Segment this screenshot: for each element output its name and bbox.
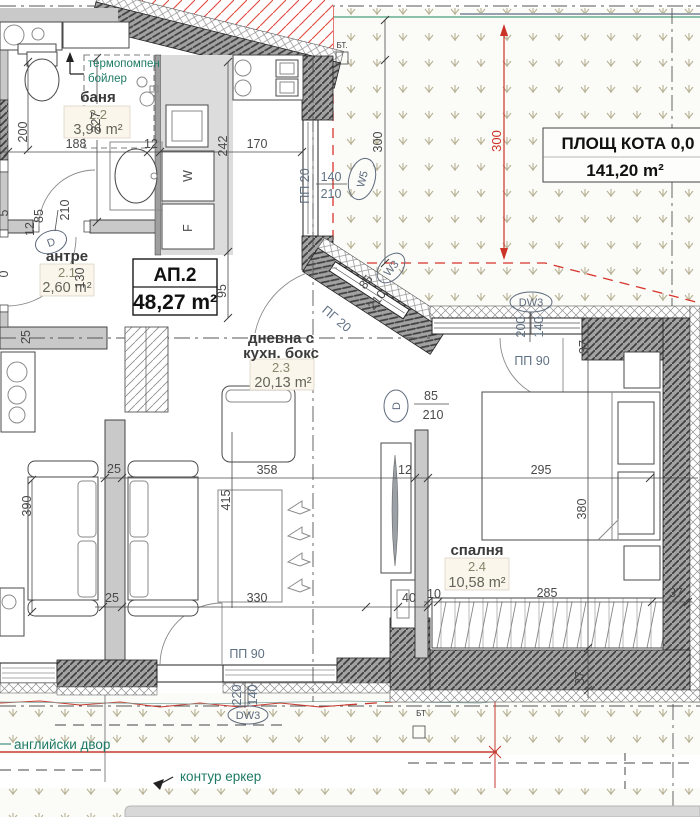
- insulation-right: [690, 306, 700, 702]
- dim-cut-0: 0: [0, 270, 11, 277]
- dim-95: 95: [215, 284, 229, 298]
- sofa1-armrest-bottom: [28, 600, 98, 616]
- sofa1-body: [28, 477, 98, 600]
- dim-300-red: 300: [489, 130, 504, 152]
- dim-dw-220: 220: [230, 685, 244, 706]
- pillow-a: [618, 402, 654, 464]
- sofa2-armrest-bottom: [128, 600, 198, 616]
- chair-3: [288, 553, 310, 566]
- wall-bath-bottom-right: [90, 220, 162, 233]
- dim-242: 242: [216, 136, 230, 157]
- wall-bedroom-right: [663, 318, 690, 690]
- dim-win-140: 140: [321, 170, 342, 184]
- dim-bed-210: 210: [423, 408, 444, 422]
- entry-jamb-top: [0, 230, 8, 237]
- entry-jamb-bottom: [0, 305, 8, 312]
- room-name-hall: антре: [46, 248, 88, 265]
- closet-hatched: [125, 327, 168, 412]
- opening-pp90-living: ПП 90: [229, 647, 264, 661]
- dim-37-bottom: 37: [573, 671, 587, 685]
- dim-dw-200: 200: [514, 317, 528, 338]
- north-arrow-head: [66, 52, 74, 62]
- dim-295: 295: [531, 463, 552, 477]
- wall-bedroom-bottom: [420, 650, 690, 690]
- boiler-unit-a: [137, 77, 147, 87]
- wall-left-b: [0, 172, 8, 230]
- insulation-south-a: [0, 683, 57, 693]
- insulation-bedroom-top: [430, 306, 690, 318]
- opening-pp20: ПП 20: [298, 168, 312, 203]
- wall-south-block: [57, 660, 157, 687]
- opening-pg20: ПГ 20: [319, 303, 353, 335]
- window-tag-dw3b: DW3: [236, 710, 260, 722]
- dim-12-tv: 12: [398, 463, 412, 477]
- room-name-bathroom: баня: [80, 89, 115, 106]
- dim-25-wall: 25: [19, 330, 33, 344]
- sofa2-armrest-top: [128, 461, 198, 477]
- nightstand-top: [624, 352, 660, 388]
- boiler-note-2: бойлер: [88, 73, 127, 85]
- dim-40: 40: [402, 591, 416, 605]
- dim-130: 130: [73, 268, 87, 289]
- wall-left-hatch: [0, 100, 8, 160]
- chair-2: [288, 527, 310, 540]
- dim-188: 188: [66, 137, 87, 151]
- opening-pp90-bedroom: ПП 90: [514, 354, 549, 368]
- dim-380: 380: [575, 499, 589, 520]
- sofa1-armrest-top: [28, 461, 98, 477]
- window-tag-dw3a: DW3: [519, 297, 543, 309]
- appliance-w: W: [181, 170, 195, 182]
- cooktop-left: [1, 352, 35, 432]
- wall-left-top: [0, 8, 118, 22]
- wall-kitchen-ne-corner: [302, 56, 333, 120]
- english-yard-note: английски двор: [14, 737, 110, 752]
- room-area-living: 20,13 m²: [254, 375, 311, 391]
- dim-25-bottom: 25: [105, 591, 119, 605]
- room-num-living: 2.3: [272, 360, 290, 375]
- north-arrow: [70, 60, 84, 74]
- floor-plan-drawing: баня 2.2 3,96 m² антре 2.1 2,60 m² дневн…: [0, 0, 700, 817]
- dim-12b: 12: [23, 222, 37, 236]
- door-tag-d2: D: [391, 402, 403, 410]
- bt-tag-bottom: БТ: [416, 709, 426, 718]
- wardrobe-bedroom: [432, 598, 663, 648]
- dim-415: 415: [219, 490, 233, 511]
- dim-285: 285: [537, 586, 558, 600]
- bay-column-left: [105, 420, 125, 660]
- pillow-b: [618, 472, 654, 534]
- dim-door-85: 85: [32, 209, 46, 223]
- insulation-bedroom-bottom: [390, 690, 700, 702]
- bay-column-right: [415, 430, 428, 658]
- insulation-south-b: [57, 687, 157, 695]
- dim-390: 390: [20, 496, 34, 517]
- dim-win-210: 210: [321, 187, 342, 201]
- toilet-bowl: [25, 59, 59, 101]
- room-name-bedroom: спалня: [450, 542, 503, 559]
- site-area-value: 141,20 m²: [586, 161, 664, 180]
- wall-kitchen-divider: [155, 55, 161, 255]
- dim-358: 358: [257, 463, 278, 477]
- dim-37-right: 37: [669, 586, 683, 600]
- floor-plan-canvas: баня 2.2 3,96 m² антре 2.1 2,60 m² дневн…: [0, 0, 700, 817]
- dim-door-210: 210: [58, 200, 72, 221]
- dim-10: 10: [427, 587, 441, 601]
- apartment-id: АП.2: [154, 265, 197, 286]
- dim-227: 227: [89, 112, 103, 133]
- road-bar: [125, 806, 700, 817]
- chair-1: [288, 501, 310, 514]
- boiler-note-1: термопомпен: [88, 58, 160, 70]
- dim-200: 200: [16, 122, 30, 143]
- apartment-area: 48,27 m²: [133, 291, 217, 314]
- dim-12a: 12: [144, 137, 158, 151]
- wall-left-c: [0, 312, 8, 327]
- sofa2-body: [128, 477, 198, 600]
- appliance-f: F: [181, 224, 195, 232]
- boiler-unit-b: [140, 92, 154, 106]
- room-area-bedroom: 10,58 m²: [448, 575, 505, 591]
- door-south-frame: [157, 665, 223, 682]
- room-num-bedroom: 2.4: [468, 559, 486, 574]
- dim-cut-5: 5: [0, 209, 11, 216]
- dim-300-black: 300: [371, 132, 385, 153]
- chair-4: [288, 579, 310, 592]
- dim-37-top: 37: [577, 340, 591, 354]
- counter-top-right: [63, 22, 129, 48]
- dim-dw-140b: 140: [246, 685, 260, 706]
- dim-170: 170: [247, 137, 268, 151]
- dim-dw-140: 140: [532, 317, 546, 338]
- window-bedroom-frame: [432, 318, 582, 334]
- site-area-title: ПЛОЩ КОТА 0,0: [562, 134, 695, 153]
- nightstand-bottom: [624, 546, 660, 580]
- dim-bed-85: 85: [424, 389, 438, 403]
- window-south-b: [223, 665, 337, 682]
- bay-contour-note: контур еркер: [180, 769, 261, 784]
- dim-330: 330: [247, 591, 268, 605]
- bt-tag-top: БТ.: [336, 41, 347, 50]
- armchair: [222, 386, 295, 462]
- dim-25-top: 25: [107, 462, 121, 476]
- window-left-sill: [0, 160, 8, 172]
- door-jamb-b: [84, 221, 90, 232]
